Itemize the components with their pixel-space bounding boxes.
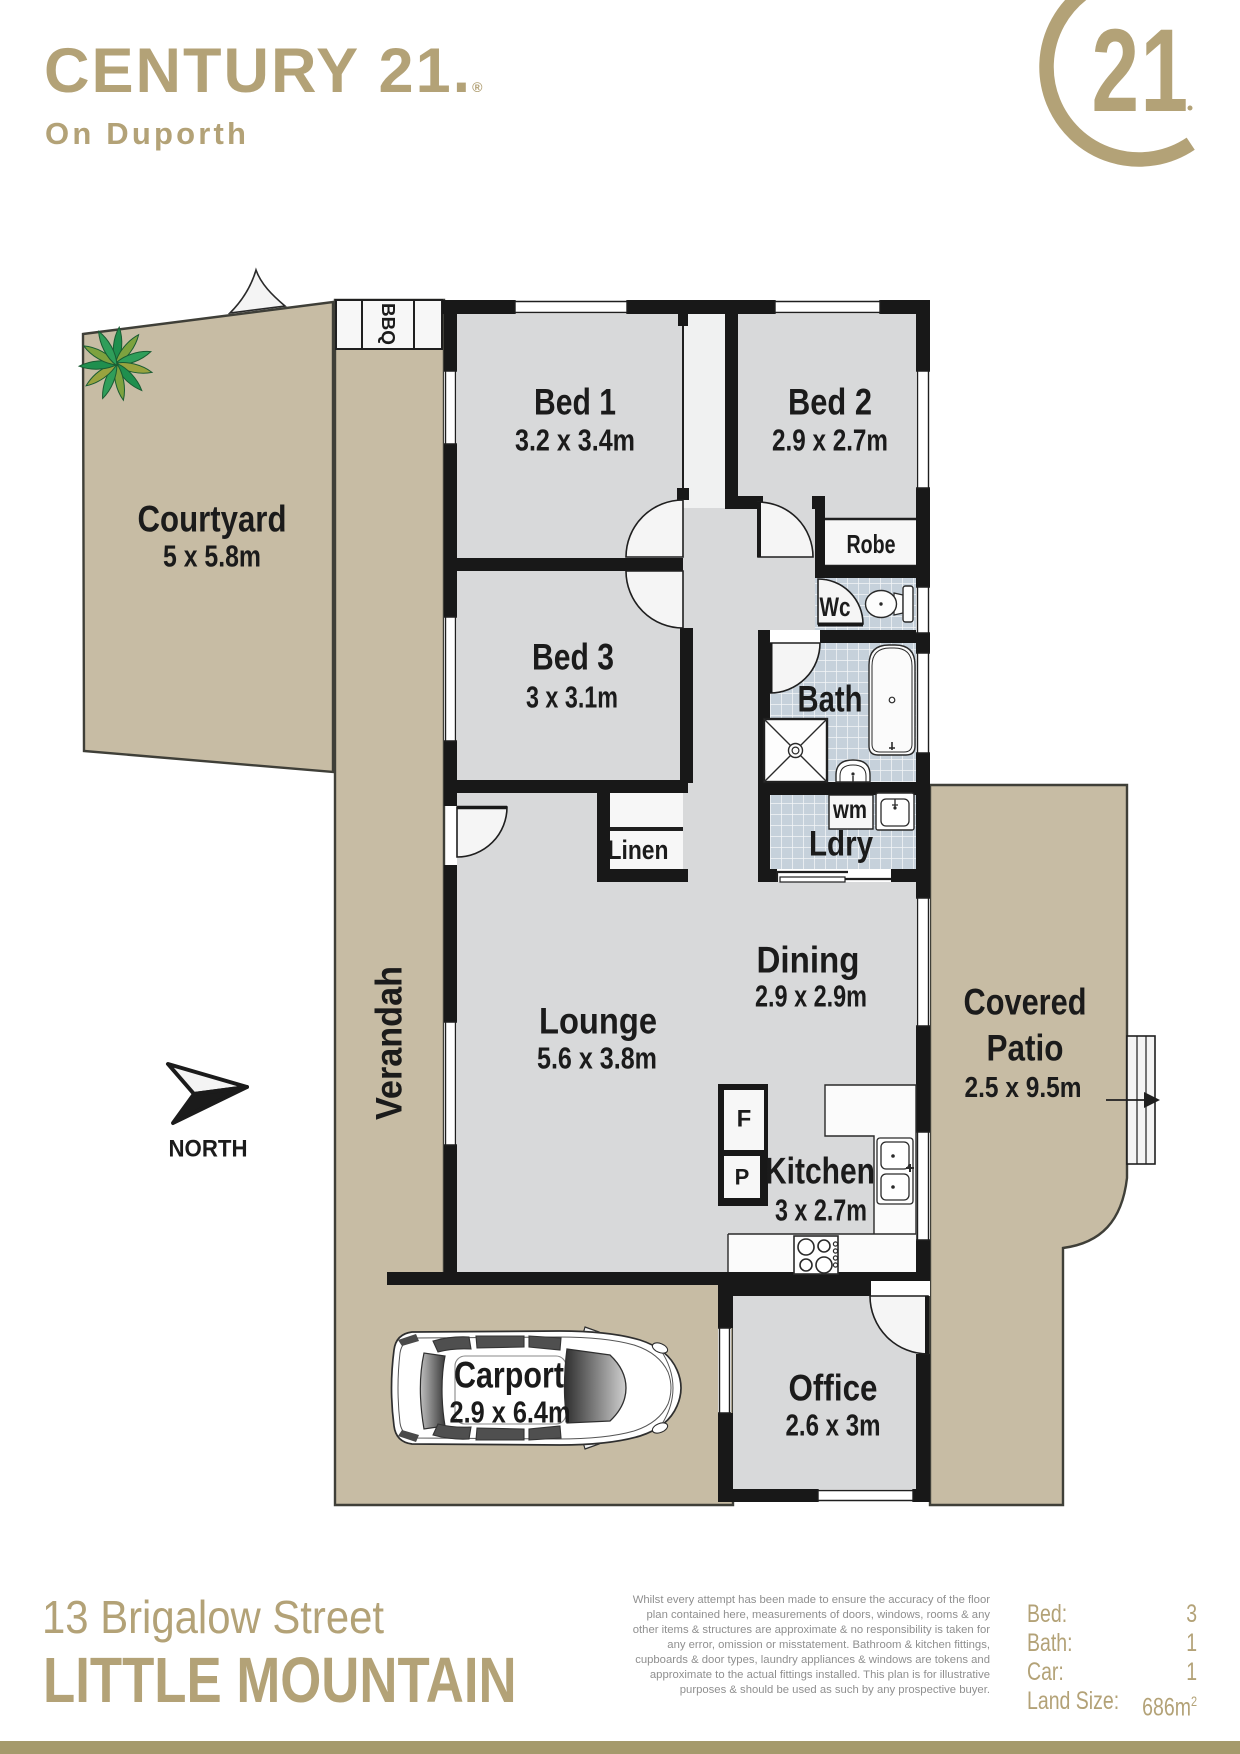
svg-text:BBQ: BBQ [378,303,398,345]
svg-text:Lounge: Lounge [539,1001,657,1042]
svg-text:Carport: Carport [454,1355,564,1396]
svg-text:Patio: Patio [987,1028,1064,1069]
svg-text:2.9 x 6.4m: 2.9 x 6.4m [450,1395,571,1430]
svg-text:Wc: Wc [820,592,851,622]
svg-text:5 x 5.8m: 5 x 5.8m [163,539,261,574]
svg-text:2.6 x 3m: 2.6 x 3m [786,1408,881,1443]
svg-text:Bath: Bath [798,679,863,720]
svg-text:Covered: Covered [964,982,1087,1023]
svg-text:P: P [735,1165,750,1190]
svg-text:Ldry: Ldry [809,825,873,864]
svg-text:2.9 x 2.7m: 2.9 x 2.7m [772,423,888,458]
svg-text:Kitchen: Kitchen [765,1151,875,1192]
svg-text:Office: Office [789,1368,878,1409]
svg-text:Dining: Dining [757,940,860,981]
svg-text:2.5 x 9.5m: 2.5 x 9.5m [965,1072,1082,1104]
svg-text:Courtyard: Courtyard [138,499,287,540]
svg-text:F: F [737,1106,752,1133]
svg-text:Verandah: Verandah [369,966,410,1120]
svg-text:NORTH: NORTH [169,1136,248,1163]
svg-text:2.9 x 2.9m: 2.9 x 2.9m [755,979,867,1014]
svg-text:3 x 2.7m: 3 x 2.7m [775,1193,867,1228]
svg-text:3 x 3.1m: 3 x 3.1m [526,680,618,715]
svg-text:Linen: Linen [608,835,669,865]
svg-text:3.2 x 3.4m: 3.2 x 3.4m [515,423,635,458]
svg-text:Bed 3: Bed 3 [532,637,614,678]
svg-text:5.6 x 3.8m: 5.6 x 3.8m [537,1041,657,1076]
svg-text:Bed 2: Bed 2 [788,382,872,423]
svg-text:Bed 1: Bed 1 [534,382,616,423]
svg-text:wm: wm [832,796,867,824]
svg-text:Robe: Robe [847,529,896,559]
